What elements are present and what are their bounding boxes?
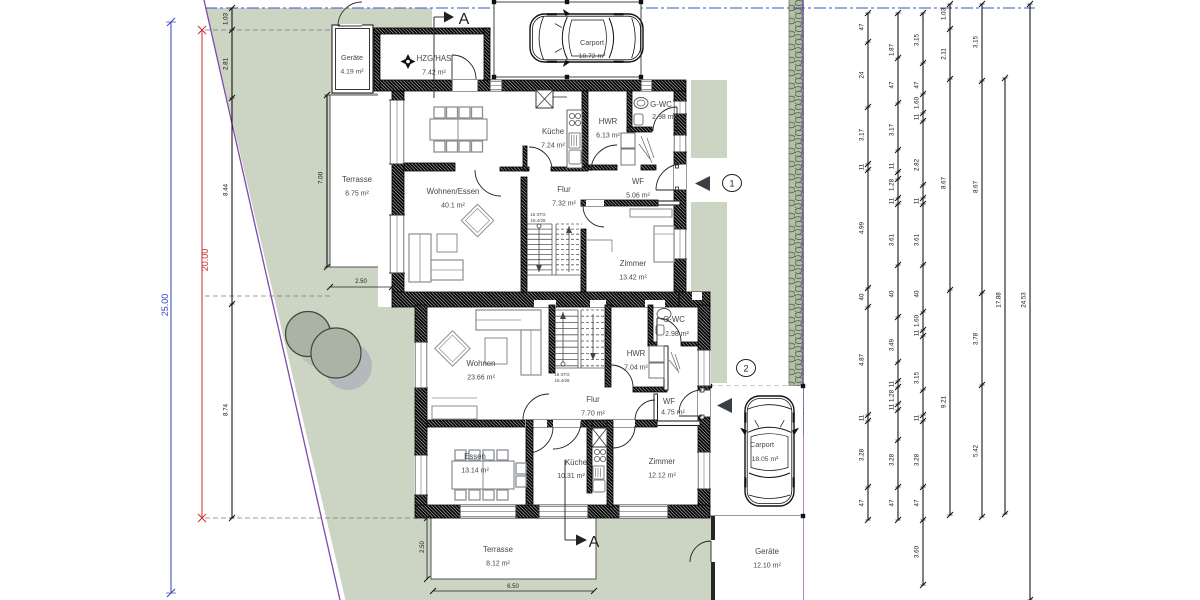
svg-text:WF: WF [663, 397, 675, 406]
svg-text:16 STG: 16 STG [554, 372, 570, 377]
svg-text:2.82: 2.82 [914, 158, 921, 171]
svg-text:12.12 m²: 12.12 m² [648, 473, 676, 480]
svg-text:24: 24 [859, 71, 866, 78]
svg-text:47: 47 [914, 499, 921, 506]
svg-text:4.19 m²: 4.19 m² [340, 69, 364, 76]
svg-text:1: 1 [729, 179, 734, 189]
svg-text:2.98 m²: 2.98 m² [665, 331, 689, 338]
svg-text:A: A [589, 534, 600, 551]
svg-text:3.15: 3.15 [973, 35, 980, 48]
svg-text:Zimmer: Zimmer [649, 457, 676, 466]
svg-text:47: 47 [889, 81, 896, 88]
svg-text:Geräte: Geräte [755, 547, 779, 556]
svg-text:1.03: 1.03 [223, 12, 230, 25]
svg-text:2.98 m²: 2.98 m² [652, 114, 676, 121]
svg-text:25.00: 25.00 [160, 294, 170, 317]
svg-text:7.04 m²: 7.04 m² [624, 365, 648, 372]
svg-text:47: 47 [859, 23, 866, 30]
svg-text:HWR: HWR [599, 117, 618, 126]
svg-text:1.03: 1.03 [941, 7, 948, 20]
svg-text:3.17: 3.17 [889, 123, 896, 136]
svg-text:16.4/28: 16.4/28 [554, 378, 570, 383]
svg-text:13.14 m²: 13.14 m² [461, 468, 489, 475]
svg-text:3.28: 3.28 [914, 453, 921, 466]
svg-text:3.49: 3.49 [889, 338, 896, 351]
svg-text:17.88: 17.88 [996, 292, 1003, 308]
svg-text:12.10 m²: 12.10 m² [753, 563, 781, 570]
svg-text:11: 11 [889, 403, 896, 410]
svg-text:1.60: 1.60 [914, 96, 921, 109]
svg-text:G-WC: G-WC [650, 100, 672, 109]
svg-text:11: 11 [889, 197, 896, 204]
svg-text:1.60: 1.60 [914, 314, 921, 327]
svg-text:47: 47 [889, 499, 896, 506]
svg-text:3.15: 3.15 [914, 33, 921, 46]
svg-text:4.99: 4.99 [859, 221, 866, 234]
svg-text:40.1 m²: 40.1 m² [441, 203, 465, 210]
svg-text:40: 40 [859, 293, 866, 300]
svg-text:Terrasse: Terrasse [483, 545, 513, 554]
svg-text:8.74: 8.74 [223, 403, 230, 416]
svg-text:1.28: 1.28 [889, 178, 896, 191]
svg-text:WF: WF [632, 177, 644, 186]
svg-text:3.61: 3.61 [914, 233, 921, 246]
svg-text:47: 47 [914, 81, 921, 88]
svg-text:16 STG: 16 STG [530, 212, 546, 217]
svg-text:Carport: Carport [750, 440, 774, 449]
svg-text:7.24 m²: 7.24 m² [541, 143, 565, 150]
svg-text:11: 11 [859, 414, 866, 421]
svg-text:6.50: 6.50 [507, 584, 519, 590]
svg-text:Küche: Küche [565, 458, 587, 467]
svg-text:Terrasse: Terrasse [342, 175, 372, 184]
svg-text:8.75 m²: 8.75 m² [345, 191, 369, 198]
svg-text:Carport: Carport [580, 38, 604, 47]
svg-text:Wohnen: Wohnen [467, 359, 496, 368]
svg-text:47: 47 [859, 499, 866, 506]
svg-text:A: A [459, 11, 470, 28]
svg-text:23.66 m²: 23.66 m² [467, 375, 495, 382]
svg-text:Geräte: Geräte [341, 53, 363, 62]
svg-text:Flur: Flur [586, 395, 600, 404]
svg-text:7.70 m²: 7.70 m² [581, 411, 605, 418]
svg-text:13.42 m²: 13.42 m² [619, 275, 647, 282]
svg-text:8.67: 8.67 [941, 176, 948, 189]
svg-text:Flur: Flur [557, 185, 571, 194]
svg-text:11: 11 [914, 113, 921, 120]
svg-text:18.05 m²: 18.05 m² [752, 456, 780, 463]
svg-text:2.50: 2.50 [355, 279, 367, 285]
svg-text:11: 11 [889, 380, 896, 387]
svg-text:7.32 m²: 7.32 m² [552, 201, 576, 208]
svg-text:3.17: 3.17 [859, 128, 866, 141]
svg-text:9.21: 9.21 [941, 395, 948, 408]
svg-text:5.06 m²: 5.06 m² [626, 193, 650, 200]
svg-text:4.75 m²: 4.75 m² [661, 410, 685, 417]
svg-text:G-WC: G-WC [663, 315, 685, 324]
svg-text:HWR: HWR [627, 349, 646, 358]
svg-text:11: 11 [914, 197, 921, 204]
svg-text:2.50: 2.50 [420, 541, 426, 553]
svg-text:3.78: 3.78 [973, 332, 980, 345]
svg-text:3.28: 3.28 [859, 448, 866, 461]
svg-text:Küche: Küche [542, 127, 564, 136]
svg-text:8.12 m²: 8.12 m² [486, 561, 510, 568]
svg-text:16.4/28: 16.4/28 [530, 218, 546, 223]
svg-text:Wohnen/Essen: Wohnen/Essen [427, 187, 480, 196]
svg-text:8.44: 8.44 [223, 183, 230, 196]
svg-text:2.11: 2.11 [941, 48, 948, 60]
svg-text:40: 40 [914, 290, 921, 297]
svg-text:2: 2 [743, 364, 748, 374]
svg-text:10.31 m²: 10.31 m² [557, 473, 585, 480]
svg-text:Zimmer: Zimmer [620, 259, 647, 268]
svg-text:8.67: 8.67 [973, 180, 980, 193]
svg-text:11: 11 [889, 162, 896, 169]
svg-text:Essen: Essen [464, 452, 486, 461]
svg-text:11: 11 [914, 414, 921, 421]
svg-text:40: 40 [889, 290, 896, 297]
svg-text:1.87: 1.87 [889, 43, 896, 56]
svg-text:7.00: 7.00 [318, 171, 325, 184]
svg-text:3.60: 3.60 [914, 545, 921, 558]
svg-text:3.15: 3.15 [914, 371, 921, 384]
svg-text:3.28: 3.28 [889, 453, 896, 466]
svg-text:6.13 m²: 6.13 m² [596, 133, 620, 140]
svg-text:18.72 m²: 18.72 m² [579, 53, 607, 60]
svg-text:11: 11 [914, 329, 921, 336]
svg-text:11: 11 [859, 163, 866, 170]
svg-text:2.81: 2.81 [223, 57, 230, 70]
svg-text:5.42: 5.42 [973, 444, 980, 457]
svg-text:3.61: 3.61 [889, 233, 896, 246]
svg-text:4.87: 4.87 [859, 353, 866, 366]
svg-text:20.00: 20.00 [200, 249, 210, 272]
svg-text:24.53: 24.53 [1021, 292, 1028, 308]
svg-text:1.28: 1.28 [889, 389, 896, 402]
